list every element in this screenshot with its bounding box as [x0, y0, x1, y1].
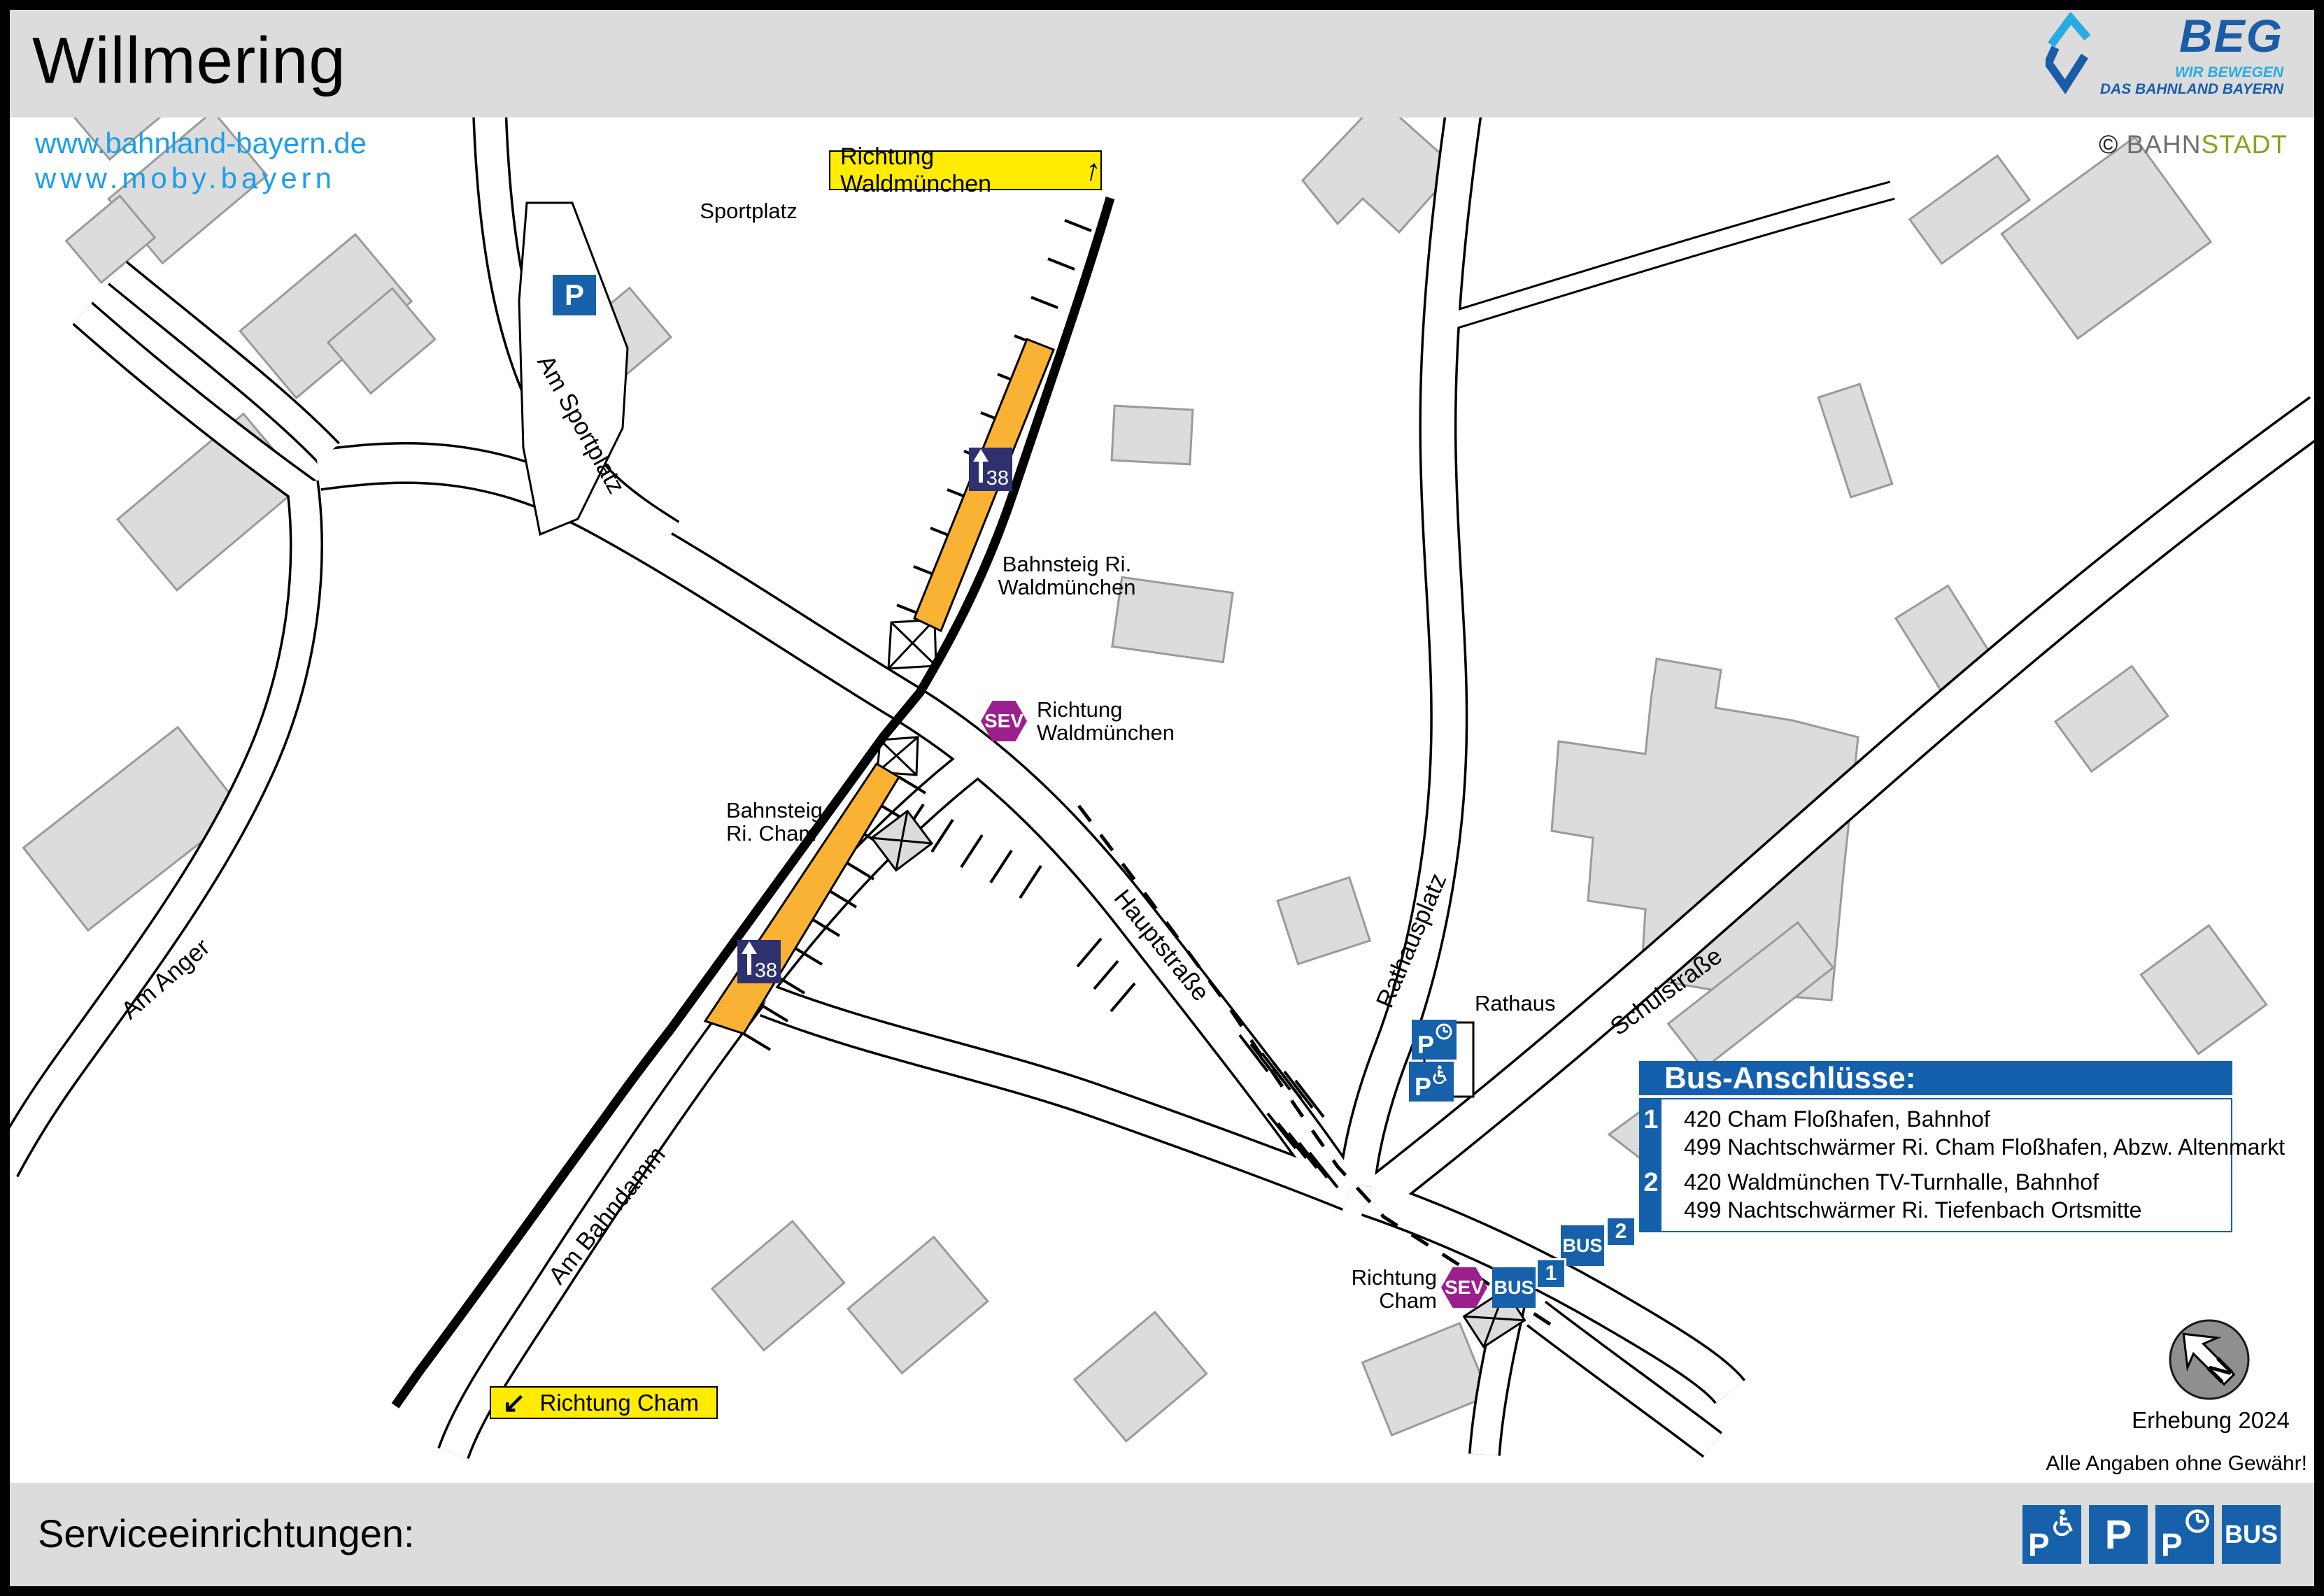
bus-stop-2-number: 2: [1608, 1218, 1634, 1245]
wheelchair-icon: [1431, 1064, 1450, 1084]
station-map-page: Willmering BEG WIR BEWEGEN DAS BAHNLAND …: [0, 0, 2324, 1596]
sev-label: SEV: [1445, 1276, 1484, 1299]
wheelchair-icon: [2050, 1508, 2078, 1536]
parking-letter: P: [2028, 1526, 2050, 1564]
label-rathaus: Rathaus: [1475, 992, 1555, 1015]
accessible-parking-sign[interactable]: P: [1409, 1062, 1454, 1102]
header-bar: Willmering: [10, 10, 2314, 117]
bus-stop-number: 1: [1545, 1262, 1557, 1285]
legend-bus-icon: BUS: [2222, 1505, 2281, 1564]
beg-tagline-2: DAS BAHNLAND BAYERN: [2100, 81, 2283, 98]
label-platform-cham-line1: Bahnsteig: [726, 799, 823, 822]
clock-icon: [1435, 1023, 1453, 1041]
direction-down-left-arrow-icon: ↙: [502, 1392, 526, 1413]
label-platform-cham: Bahnsteig Ri. Cham: [726, 799, 823, 845]
page-title: Willmering: [32, 23, 346, 99]
credit-bahn: BAHN: [2127, 130, 2202, 159]
label-sev-cham-line1: Richtung: [1297, 1266, 1437, 1289]
service-facilities-label: Serviceeinrichtungen:: [38, 1511, 415, 1556]
link-bahnland-bayern[interactable]: www.bahnland-bayern.de: [35, 127, 367, 159]
label-sev-wald-line1: Richtung: [1037, 698, 1175, 721]
km-marker-cham: 38: [737, 940, 781, 983]
label-sportplatz: Sportplatz: [700, 199, 798, 222]
bus-connections-panel: Bus-Anschlüsse: 1 420 Cham Floßhafen, Ba…: [1639, 1061, 2232, 1232]
bus-stop-2[interactable]: BUS: [1561, 1225, 1604, 1266]
footer-bar: Serviceeinrichtungen:: [10, 1483, 2314, 1586]
credit-stadt: STADT: [2201, 130, 2288, 159]
frame-left: [0, 0, 10, 1596]
beg-logo: BEG WIR BEWEGEN DAS BAHNLAND BAYERN: [2046, 13, 2283, 98]
bus-row-number: 1: [1641, 1105, 1661, 1135]
label-platform-cham-line2: Ri. Cham: [726, 822, 823, 845]
label-sev-wald-line2: Waldmünchen: [1037, 721, 1175, 744]
bus-panel-body: 1 420 Cham Floßhafen, Bahnhof 499 Nachts…: [1639, 1098, 2232, 1232]
direction-text: Richtung Waldmünchen: [840, 143, 1072, 198]
bus-stop-1-number: 1: [1538, 1260, 1564, 1287]
bus-row-number: 2: [1641, 1168, 1661, 1198]
km-number: 38: [986, 467, 1009, 490]
bus-label: BUS: [2225, 1520, 2278, 1549]
bus-panel-title: Bus-Anschlüsse:: [1639, 1061, 2232, 1095]
frame-bottom: [0, 1586, 2324, 1596]
beg-diamond-icon: [2046, 13, 2090, 94]
bus-label: BUS: [1494, 1277, 1533, 1299]
link-moby-bayern[interactable]: www.moby.bayern: [35, 162, 336, 194]
parking-letter: P: [565, 278, 584, 312]
beg-tagline-1: WIR BEWEGEN: [2100, 64, 2283, 81]
parking-letter: P: [1415, 1072, 1431, 1102]
bus-panel-row-2: 2 420 Waldmünchen TV-Turnhalle, Bahnhof …: [1684, 1168, 2224, 1224]
bus-stop-1[interactable]: BUS: [1492, 1267, 1536, 1308]
direction-up-arrow-icon: ↑: [1083, 159, 1103, 183]
bus-row-line: 499 Nachtschwärmer Ri. Cham Floßhafen, A…: [1684, 1133, 2224, 1161]
bahnstadt-credit: © BAHNSTADT: [2099, 130, 2288, 159]
direction-box-cham: ↙ Richtung Cham: [490, 1386, 718, 1419]
label-platform-waldmuenchen-line2: Waldmünchen: [976, 576, 1158, 599]
label-platform-waldmuenchen-line1: Bahnsteig Ri.: [976, 553, 1158, 576]
disclaimer-text: Alle Angaben ohne Gewähr!: [2046, 1452, 2307, 1476]
north-arrow-icon: N: [2167, 1318, 2251, 1402]
sev-label: SEV: [984, 710, 1023, 732]
parking-letter: P: [2161, 1526, 2183, 1564]
parking-sign-sportplatz[interactable]: P: [553, 275, 596, 315]
direction-box-waldmuenchen: Richtung Waldmünchen ↑: [829, 150, 1102, 190]
legend-accessible-parking-icon: P: [2022, 1505, 2081, 1564]
copyright-icon: ©: [2099, 130, 2118, 159]
direction-text: Richtung Cham: [540, 1390, 699, 1416]
frame-right: [2314, 0, 2324, 1596]
frame-top: [0, 0, 2324, 10]
legend-short-term-parking-icon: P: [2155, 1505, 2214, 1564]
bus-row-line: 499 Nachtschwärmer Ri. Tiefenbach Ortsmi…: [1684, 1196, 2224, 1224]
survey-year: Erhebung 2024: [2127, 1407, 2295, 1434]
bus-panel-row-1: 1 420 Cham Floßhafen, Bahnhof 499 Nachts…: [1684, 1105, 2224, 1161]
label-platform-waldmuenchen: Bahnsteig Ri. Waldmünchen: [976, 553, 1158, 599]
bus-row-line: 420 Waldmünchen TV-Turnhalle, Bahnhof: [1684, 1168, 2224, 1196]
label-sev-cham: Richtung Cham: [1297, 1266, 1437, 1312]
bus-row-line: 420 Cham Floßhafen, Bahnhof: [1684, 1105, 2224, 1133]
parking-letter: P: [2105, 1511, 2132, 1558]
km-number: 38: [755, 960, 777, 983]
label-sev-waldmuenchen: Richtung Waldmünchen: [1037, 698, 1175, 744]
clock-icon: [2184, 1508, 2211, 1534]
parking-letter: P: [1417, 1030, 1434, 1060]
label-sev-cham-line2: Cham: [1297, 1289, 1437, 1312]
north-arrow: N: [2167, 1318, 2251, 1405]
map-canvas: [0, 0, 2324, 1596]
beg-wordmark: BEG: [2100, 13, 2283, 59]
rail-crossing-north: [888, 620, 936, 669]
legend-parking-icon: P: [2089, 1505, 2148, 1564]
bus-stop-number: 2: [1615, 1220, 1627, 1244]
bus-label: BUS: [1562, 1235, 1602, 1257]
short-term-parking-sign[interactable]: P: [1412, 1020, 1457, 1060]
km-marker-waldmuenchen: 38: [969, 448, 1012, 491]
